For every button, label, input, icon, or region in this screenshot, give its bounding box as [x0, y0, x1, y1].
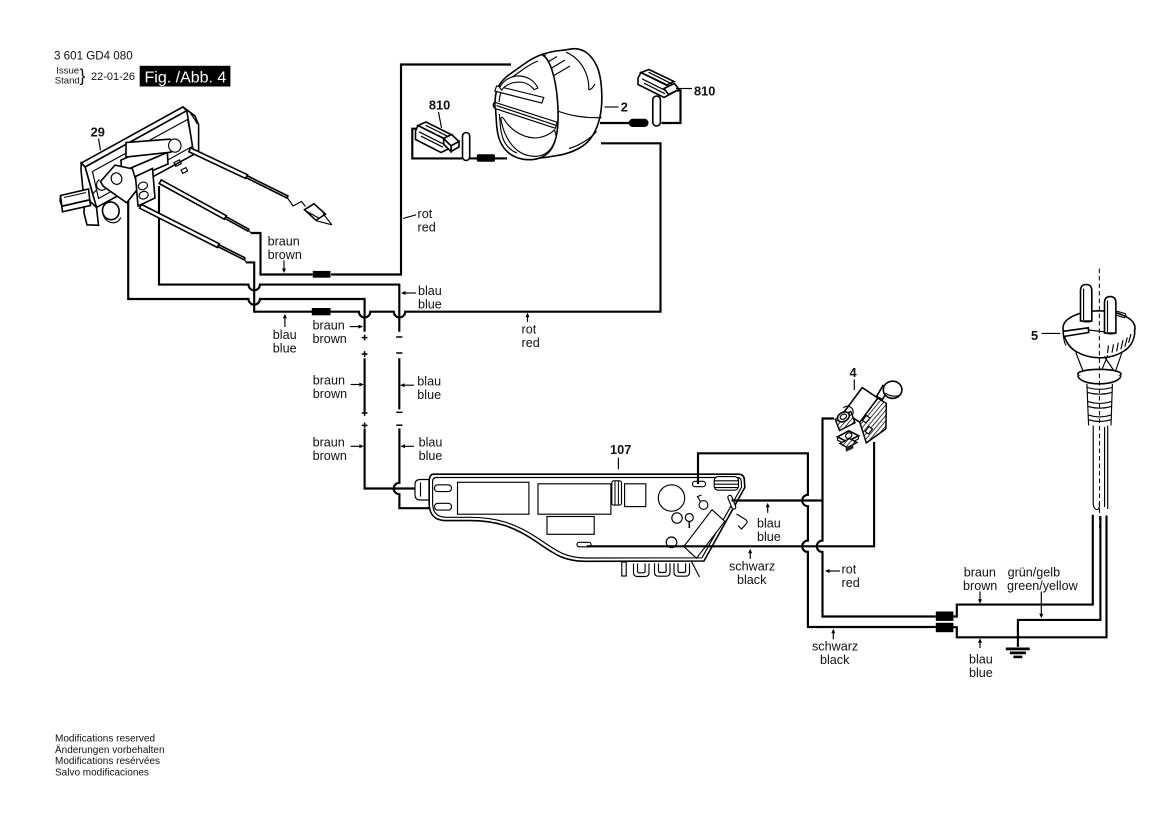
svg-text:brown: brown [268, 248, 302, 262]
svg-text:Änderungen vorbehalten: Änderungen vorbehalten [55, 744, 165, 756]
svg-text:3 601 GD4 080: 3 601 GD4 080 [54, 50, 133, 63]
svg-text:blue: blue [969, 666, 993, 680]
svg-text:brown: brown [313, 449, 347, 463]
svg-text:braun: braun [313, 436, 345, 450]
svg-text:braun: braun [268, 235, 300, 249]
svg-text:red: red [522, 336, 540, 350]
svg-text:brown: brown [313, 387, 347, 401]
svg-text:blue: blue [757, 530, 781, 544]
svg-text:schwarz: schwarz [729, 560, 775, 574]
svg-text:blue: blue [417, 388, 441, 402]
svg-text:Modifications resérvées: Modifications resérvées [55, 756, 160, 767]
svg-text:810: 810 [694, 84, 715, 99]
svg-text:blue: blue [273, 342, 297, 356]
svg-text:Stand: Stand [55, 75, 80, 86]
svg-text:braun: braun [964, 566, 996, 580]
svg-text:green/yellow: green/yellow [1007, 579, 1079, 593]
svg-text:blau: blau [757, 517, 781, 531]
svg-text:red: red [418, 221, 436, 235]
svg-text:blau: blau [417, 375, 441, 389]
svg-text:22-01-26: 22-01-26 [91, 71, 135, 83]
svg-text:Modifications reserved: Modifications reserved [55, 734, 155, 745]
svg-text:5: 5 [1031, 328, 1038, 343]
svg-text:blau: blau [969, 653, 993, 667]
svg-text:Salvo modificaciones: Salvo modificaciones [55, 767, 149, 778]
svg-text:braun: braun [313, 374, 345, 388]
svg-text:107: 107 [610, 442, 631, 457]
svg-text:rot: rot [522, 323, 537, 337]
svg-text:rot: rot [842, 563, 857, 577]
svg-text:2: 2 [621, 100, 628, 115]
svg-text:brown: brown [963, 579, 997, 593]
svg-text:red: red [842, 576, 860, 590]
svg-text:black: black [737, 573, 767, 587]
svg-text:blau: blau [419, 436, 443, 450]
svg-text:grün/gelb: grün/gelb [1008, 566, 1061, 580]
svg-text:schwarz: schwarz [812, 640, 858, 654]
svg-text:810: 810 [429, 98, 450, 113]
svg-text:}: } [80, 66, 86, 86]
svg-text:4: 4 [850, 365, 858, 380]
svg-text:Fig. /Abb. 4: Fig. /Abb. 4 [145, 69, 227, 86]
svg-text:blue: blue [418, 298, 442, 312]
svg-text:brown: brown [313, 332, 347, 346]
svg-text:black: black [820, 653, 850, 667]
svg-text:blue: blue [419, 449, 443, 463]
svg-text:29: 29 [91, 125, 105, 140]
svg-text:blau: blau [273, 328, 297, 342]
svg-text:braun: braun [313, 319, 345, 333]
svg-text:blau: blau [418, 284, 442, 298]
svg-text:rot: rot [418, 207, 433, 221]
